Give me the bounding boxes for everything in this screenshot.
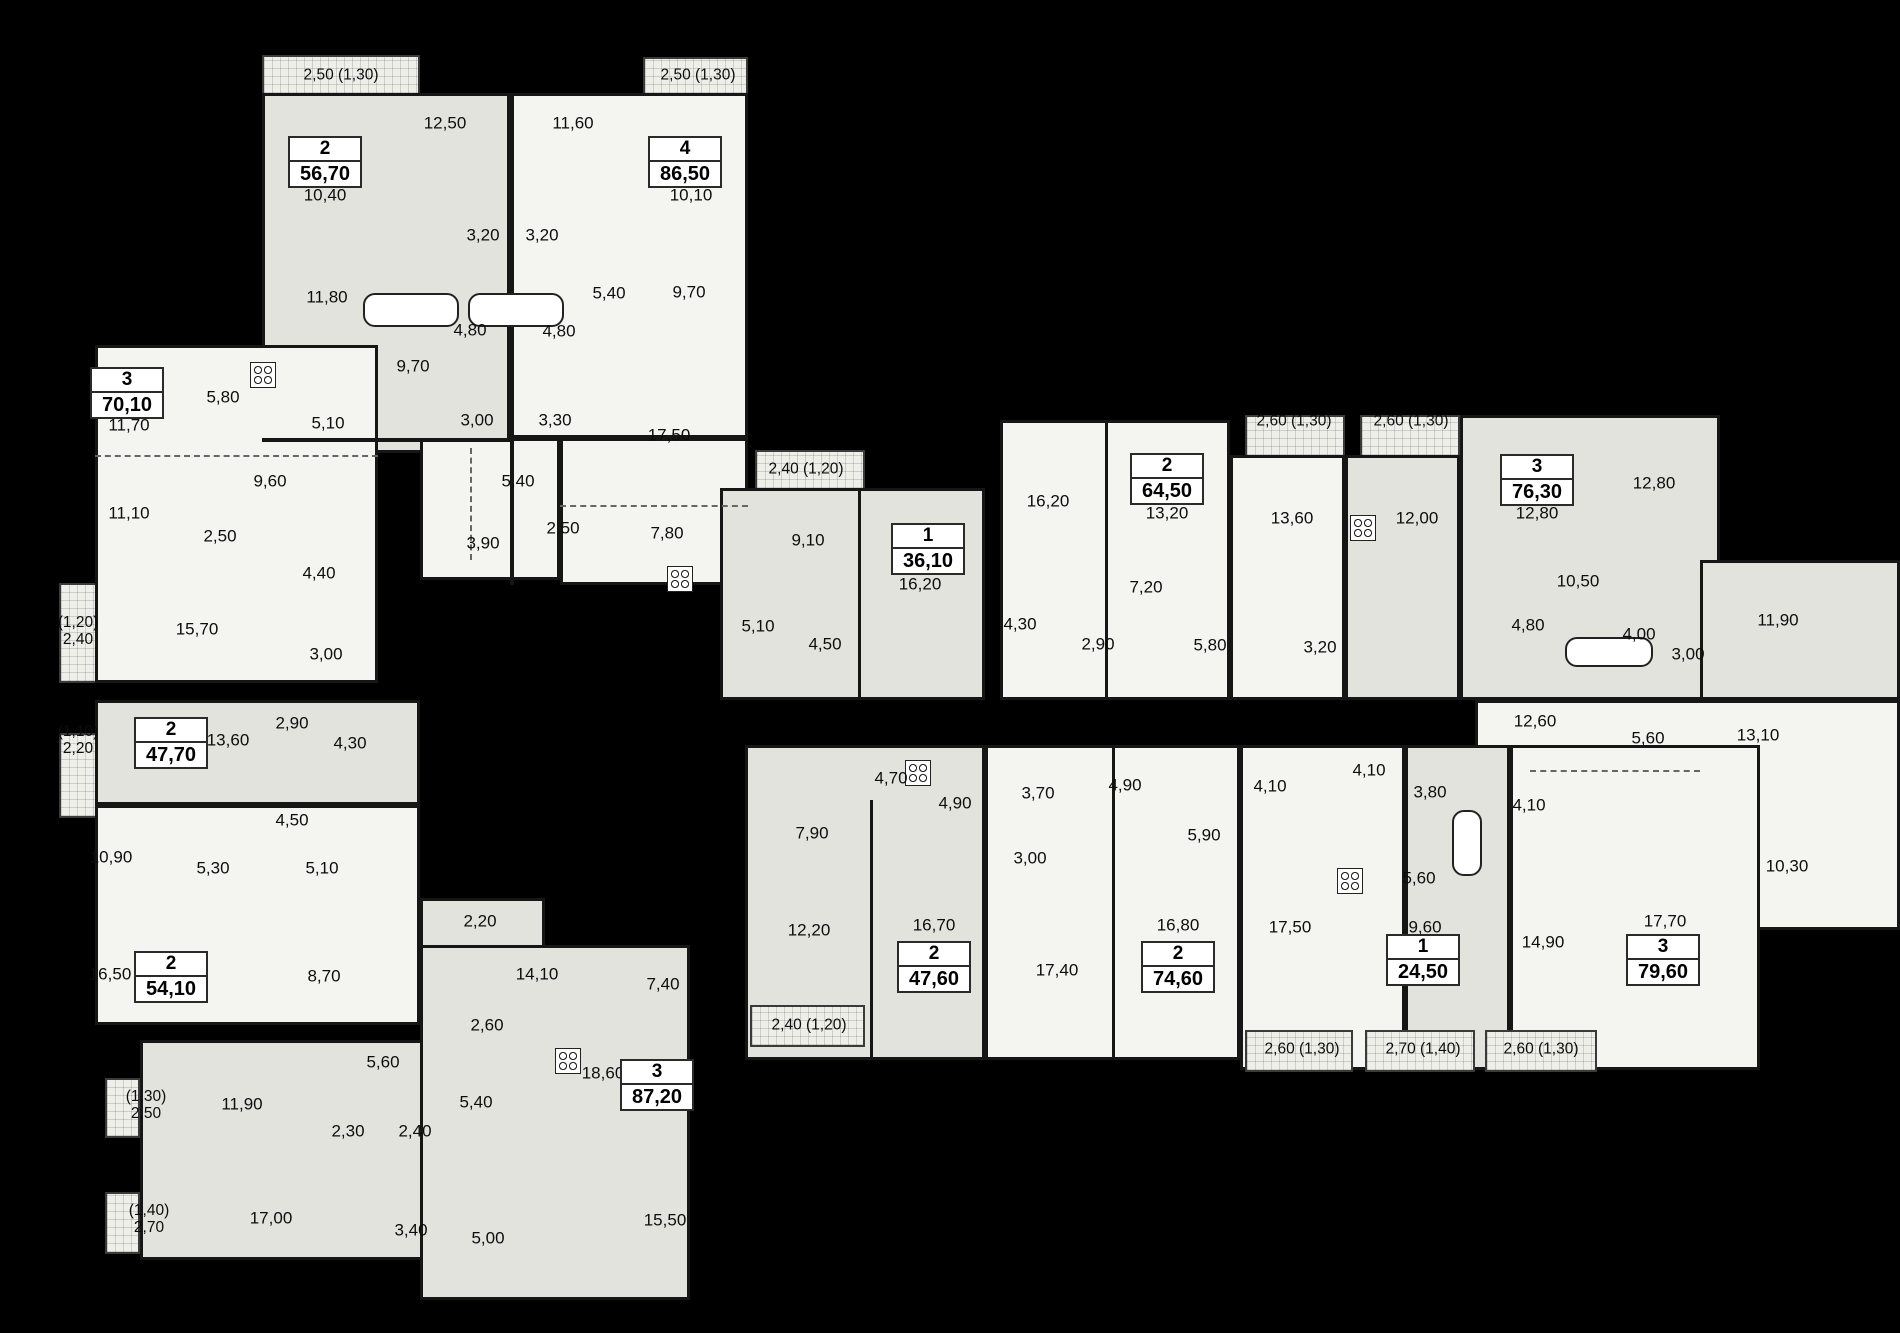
stove-icon <box>1350 515 1376 541</box>
apartment-area-value: 24,50 <box>1388 960 1458 984</box>
room-size-label: 5,10 <box>311 414 344 433</box>
balcony-size-label: 2,60 (1,30) <box>1374 413 1449 430</box>
apartment-area <box>1230 455 1345 700</box>
apartment-area <box>1345 455 1460 700</box>
apartment-rooms-count: 2 <box>290 138 360 162</box>
room-size-label: 2,30 <box>331 1122 364 1141</box>
apartment-area-value: 47,70 <box>136 743 206 767</box>
room-size-label: 12,80 <box>1633 474 1676 493</box>
balcony-size-label: 2,50 (1,30) <box>661 67 736 84</box>
room-size-label: 4,10 <box>1352 761 1385 780</box>
room-size-label: 4,10 <box>1253 777 1286 796</box>
apartment-area-value: 70,10 <box>92 393 162 417</box>
apartment-badge: 247,60 <box>897 941 971 993</box>
room-size-label: 5,80 <box>206 388 239 407</box>
room-size-label: 5,40 <box>592 284 625 303</box>
room-size-label: 7,90 <box>795 824 828 843</box>
partition-dashed-line <box>1530 770 1700 772</box>
room-size-label: 3,40 <box>394 1221 427 1240</box>
room-size-label: 9,70 <box>672 283 705 302</box>
apartment-badge: 486,50 <box>648 136 722 188</box>
room-size-label: 5,30 <box>196 859 229 878</box>
room-size-label: 10,30 <box>1766 857 1809 876</box>
balcony-size-label: (1,30) 2,50 <box>126 1088 167 1122</box>
apartment-rooms-count: 3 <box>92 369 162 393</box>
room-size-label: 14,90 <box>1522 933 1565 952</box>
room-size-label: 15,50 <box>644 1211 687 1230</box>
apartment-rooms-count: 1 <box>1388 936 1458 960</box>
apartment-badge: 387,20 <box>620 1059 694 1111</box>
room-size-label: 2,90 <box>1081 635 1114 654</box>
room-size-label: 11,90 <box>1757 611 1798 630</box>
room-size-label: 3,80 <box>1413 783 1446 802</box>
room-size-label: 18,60 <box>582 1064 625 1083</box>
room-size-label: 16,20 <box>899 575 942 594</box>
room-size-label: 5,10 <box>741 617 774 636</box>
apartment-area-value: 64,50 <box>1132 479 1202 503</box>
balcony-size-label: 2,40 (1,20) <box>772 1017 847 1034</box>
room-size-label: 16,80 <box>1157 916 1200 935</box>
partition-dashed-line <box>560 505 748 507</box>
room-size-label: 2,60 <box>470 1016 503 1035</box>
room-size-label: 8,70 <box>307 967 340 986</box>
apartment-badge: 136,10 <box>891 523 965 575</box>
room-size-label: 5,40 <box>459 1093 492 1112</box>
room-size-label: 3,00 <box>1671 645 1704 664</box>
balcony-size-label: 2,40 (1,20) <box>769 461 844 478</box>
room-size-label: 3,20 <box>466 226 499 245</box>
bathtub-icon <box>1452 810 1482 876</box>
room-size-label: 4,80 <box>453 321 486 340</box>
stove-icon <box>667 566 693 592</box>
apartment-rooms-count: 3 <box>1502 456 1572 480</box>
room-size-label: 17,40 <box>1036 961 1079 980</box>
room-size-label: 11,90 <box>221 1095 262 1114</box>
room-size-label: 4,70 <box>874 769 907 788</box>
stove-icon <box>250 362 276 388</box>
apartment-area <box>420 945 690 1300</box>
apartment-area <box>420 438 560 580</box>
room-size-label: 11,80 <box>306 288 347 307</box>
room-size-label: 17,50 <box>1269 918 1312 937</box>
room-size-label: 13,60 <box>1271 509 1314 528</box>
room-size-label: 5,10 <box>305 859 338 878</box>
apartment-area <box>720 488 985 700</box>
apartment-rooms-count: 2 <box>899 943 969 967</box>
partition-dashed-line <box>95 455 378 457</box>
apartment-area-value: 36,10 <box>893 549 963 573</box>
apartment-badge: 376,30 <box>1500 454 1574 506</box>
room-size-label: 12,60 <box>1514 712 1557 731</box>
room-size-label: 3,90 <box>466 534 499 553</box>
stove-icon <box>555 1048 581 1074</box>
room-size-label: 11,10 <box>108 504 149 523</box>
apartment-rooms-count: 2 <box>1132 455 1202 479</box>
apartment-area-value: 74,60 <box>1143 967 1213 991</box>
room-size-label: 4,50 <box>275 811 308 830</box>
balcony-size-label: 2,60 (1,30) <box>1257 413 1332 430</box>
room-size-label: 2,90 <box>275 714 308 733</box>
room-size-label: 10,50 <box>1557 572 1600 591</box>
apartment-badge: 379,60 <box>1626 934 1700 986</box>
balcony-size-label: (1,10) 2,20 <box>58 723 99 757</box>
room-size-label: 7,80 <box>650 524 683 543</box>
balcony-size-label: (1,40) 2,70 <box>129 1202 170 1236</box>
room-size-label: 11,60 <box>552 114 593 133</box>
room-size-label: 4,50 <box>808 635 841 654</box>
room-size-label: 12,80 <box>1516 504 1559 523</box>
room-size-label: 4,10 <box>1512 796 1545 815</box>
room-size-label: 3,20 <box>1303 638 1336 657</box>
room-size-label: 17,00 <box>250 1209 293 1228</box>
room-size-label: 17,70 <box>1644 912 1687 931</box>
apartment-area-value: 86,50 <box>650 162 720 186</box>
room-size-label: 4,30 <box>333 734 366 753</box>
room-size-label: 10,40 <box>304 186 347 205</box>
apartment-rooms-count: 2 <box>1143 943 1213 967</box>
apartment-rooms-count: 3 <box>622 1061 692 1085</box>
bathtub-icon <box>363 293 459 327</box>
room-size-label: 13,20 <box>1146 504 1189 523</box>
room-size-label: 5,80 <box>1193 636 1226 655</box>
room-size-label: 7,20 <box>1129 578 1162 597</box>
room-size-label: 4,90 <box>938 794 971 813</box>
room-size-label: 2,50 <box>203 527 236 546</box>
room-size-label: 4,80 <box>1511 616 1544 635</box>
apartment-badge: 264,50 <box>1130 453 1204 505</box>
interior-wall <box>262 438 510 442</box>
apartment-rooms-count: 2 <box>136 719 206 743</box>
apartment-rooms-count: 2 <box>136 953 206 977</box>
interior-wall <box>858 488 861 700</box>
balcony-size-label: (1,20) 2,40 <box>58 614 99 648</box>
room-size-label: 12,00 <box>1396 509 1439 528</box>
room-size-label: 2,20 <box>463 912 496 931</box>
apartment-area <box>1510 745 1760 1070</box>
room-size-label: 5,40 <box>501 472 534 491</box>
stove-icon <box>1337 868 1363 894</box>
room-size-label: 15,70 <box>176 620 219 639</box>
apartment-badge: 256,70 <box>288 136 362 188</box>
room-size-label: 3,00 <box>1013 849 1046 868</box>
room-size-label: 5,00 <box>471 1229 504 1248</box>
room-size-label: 2,50 <box>546 519 579 538</box>
room-size-label: 4,00 <box>1622 625 1655 644</box>
apartment-badge: 124,50 <box>1386 934 1460 986</box>
room-size-label: 9,10 <box>791 531 824 550</box>
room-size-label: 9,70 <box>396 357 429 376</box>
room-size-label: 10,90 <box>90 848 133 867</box>
apartment-badge: 247,70 <box>134 717 208 769</box>
room-size-label: 3,30 <box>538 411 571 430</box>
room-size-label: 7,40 <box>646 975 679 994</box>
room-size-label: 3,00 <box>309 645 342 664</box>
apartment-area-value: 76,30 <box>1502 480 1572 504</box>
room-size-label: 16,50 <box>89 965 132 984</box>
room-size-label: 5,60 <box>1402 869 1435 888</box>
room-size-label: 4,80 <box>542 322 575 341</box>
room-size-label: 3,20 <box>525 226 558 245</box>
balcony-size-label: 2,50 (1,30) <box>304 67 379 84</box>
interior-wall <box>510 93 514 585</box>
room-size-label: 12,20 <box>788 921 831 940</box>
apartment-area-value: 47,60 <box>899 967 969 991</box>
apartment-area-value: 54,10 <box>136 977 206 1001</box>
apartment-rooms-count: 4 <box>650 138 720 162</box>
room-size-label: 4,30 <box>1003 615 1036 634</box>
room-size-label: 4,40 <box>302 564 335 583</box>
room-size-label: 3,00 <box>460 411 493 430</box>
room-size-label: 2,40 <box>398 1122 431 1141</box>
stove-icon <box>905 760 931 786</box>
room-size-label: 13,60 <box>207 731 250 750</box>
room-size-label: 12,50 <box>424 114 467 133</box>
apartment-badge: 370,10 <box>90 367 164 419</box>
room-size-label: 5,60 <box>366 1053 399 1072</box>
room-size-label: 14,10 <box>516 965 559 984</box>
apartment-area-value: 79,60 <box>1628 960 1698 984</box>
room-size-label: 5,90 <box>1187 826 1220 845</box>
apartment-area-value: 87,20 <box>622 1085 692 1109</box>
room-size-label: 13,10 <box>1737 726 1780 745</box>
apartment-badge: 254,10 <box>134 951 208 1003</box>
interior-wall <box>870 800 873 1060</box>
apartment-rooms-count: 3 <box>1628 936 1698 960</box>
room-size-label: 5,60 <box>1631 729 1664 748</box>
interior-wall <box>1105 420 1108 700</box>
room-size-label: 4,90 <box>1108 776 1141 795</box>
room-size-label: 3,70 <box>1021 784 1054 803</box>
balcony-size-label: 2,60 (1,30) <box>1265 1041 1340 1058</box>
apartment-badge: 274,60 <box>1141 941 1215 993</box>
apartment-rooms-count: 1 <box>893 525 963 549</box>
room-size-label: 10,10 <box>670 186 713 205</box>
floor-plan: 12,5011,6010,4010,103,203,2011,805,409,7… <box>0 0 1900 1333</box>
room-size-label: 16,70 <box>913 916 956 935</box>
room-size-label: 17,50 <box>648 426 691 445</box>
balcony-size-label: 2,60 (1,30) <box>1504 1041 1579 1058</box>
room-size-label: 16,20 <box>1027 492 1070 511</box>
balcony-size-label: 2,70 (1,40) <box>1386 1041 1461 1058</box>
apartment-area-value: 56,70 <box>290 162 360 186</box>
room-size-label: 9,60 <box>253 472 286 491</box>
apartment-area <box>1700 560 1900 700</box>
